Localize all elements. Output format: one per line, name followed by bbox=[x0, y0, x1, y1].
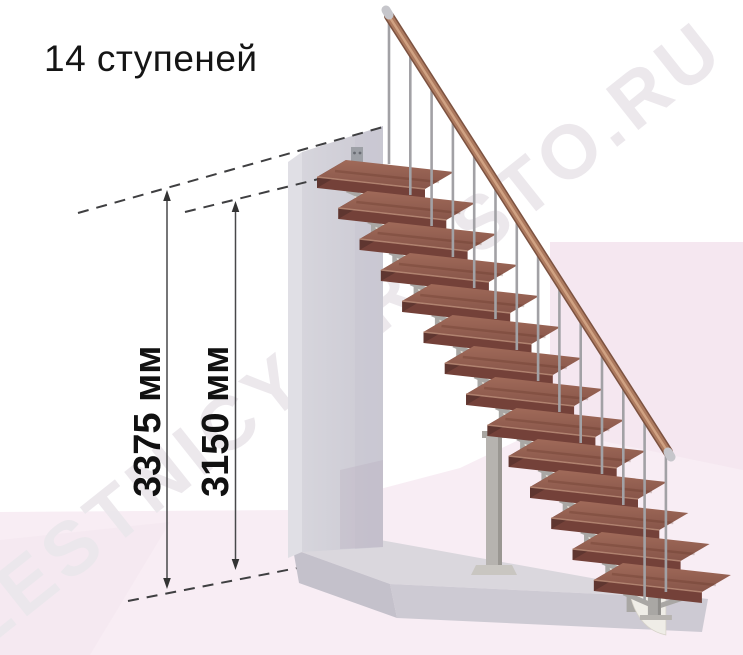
staircase-diagram: LESTNICY-PROSTO.RU bbox=[0, 0, 743, 655]
dimension-label-stair-height: 3150 мм bbox=[195, 346, 237, 497]
handrail-top-cap bbox=[386, 10, 389, 15]
handrail-end-cap bbox=[668, 452, 671, 457]
support-post-base bbox=[471, 565, 517, 575]
page-title: 14 ступеней bbox=[44, 38, 258, 80]
diagram-canvas: LESTNICY-PROSTO.RU bbox=[0, 0, 743, 655]
wall-bottom-tint bbox=[340, 460, 383, 549]
wall-side-face bbox=[288, 152, 302, 558]
stringer-base bbox=[640, 615, 672, 620]
dimension-label-total-height: 3375 мм bbox=[127, 346, 169, 497]
